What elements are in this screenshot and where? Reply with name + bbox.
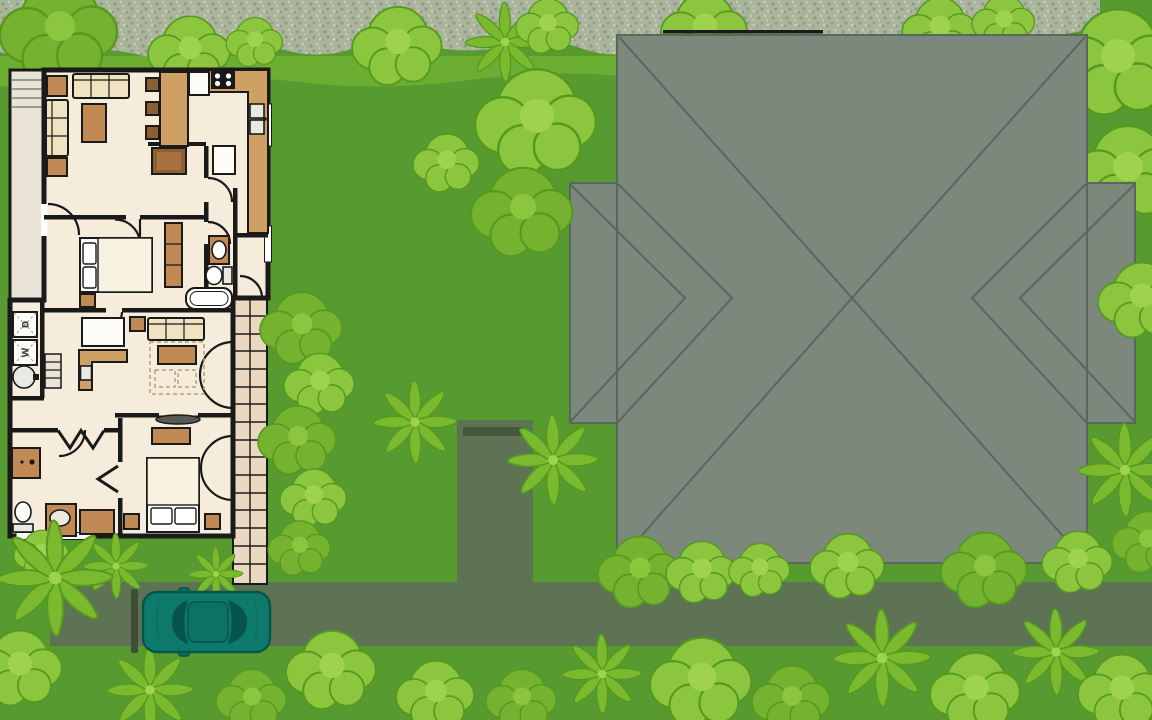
nightstand: [80, 294, 95, 307]
desk: [82, 318, 124, 346]
palm-tree: [374, 381, 457, 464]
gate-post: [131, 589, 138, 653]
toilet-tank: [13, 524, 33, 532]
sink: [212, 241, 226, 259]
side-table: [47, 76, 67, 96]
car: [143, 588, 270, 656]
sofa: [73, 74, 129, 98]
breakfast-bar: [160, 72, 188, 146]
roof-left-wing: [570, 183, 617, 423]
wardrobe: [165, 223, 182, 287]
coffee-table: [82, 104, 106, 142]
toilet-tank: [223, 267, 232, 284]
site-plan: D W: [0, 0, 1152, 720]
side-table: [47, 158, 67, 176]
palm-tree: [508, 415, 598, 505]
bar-stool: [146, 102, 159, 115]
sofa: [148, 318, 204, 340]
kitchen-sink: [250, 120, 264, 134]
kitchen-sink: [250, 104, 264, 118]
building-top-wall-line: [663, 30, 823, 34]
tv: [156, 415, 200, 424]
car-roof: [188, 602, 228, 642]
closet: [213, 146, 235, 174]
bar-stool: [146, 78, 159, 91]
side-table: [130, 317, 145, 331]
main-building-roof: [570, 30, 1135, 563]
counter: [80, 510, 114, 534]
porch-door-opening: [41, 204, 48, 236]
guest-house: D W: [10, 70, 272, 540]
palm-tree: [0, 520, 113, 635]
dryer-label: D: [22, 321, 32, 328]
laundry-sink: [13, 366, 35, 388]
nightstand: [205, 514, 220, 529]
coffee-table: [158, 346, 196, 364]
entry-path: [457, 420, 533, 586]
path-step: [463, 427, 524, 436]
pillow: [83, 267, 96, 288]
vanity: [12, 448, 40, 478]
washer-label: W: [22, 347, 32, 357]
shelf-steps: [45, 354, 61, 388]
palm-tree: [562, 634, 641, 713]
dresser: [152, 428, 190, 444]
toilet: [206, 267, 222, 285]
palm-tree: [833, 609, 930, 706]
pillow: [83, 243, 96, 264]
stove: [211, 70, 235, 89]
nightstand: [124, 514, 139, 529]
bar-sink: [81, 366, 92, 380]
fridge: [189, 72, 209, 95]
sofa: [46, 100, 68, 156]
pillow: [175, 508, 196, 524]
toilet: [15, 502, 31, 522]
pillow: [151, 508, 172, 524]
porch: [10, 70, 44, 300]
bar-stool: [146, 126, 159, 139]
